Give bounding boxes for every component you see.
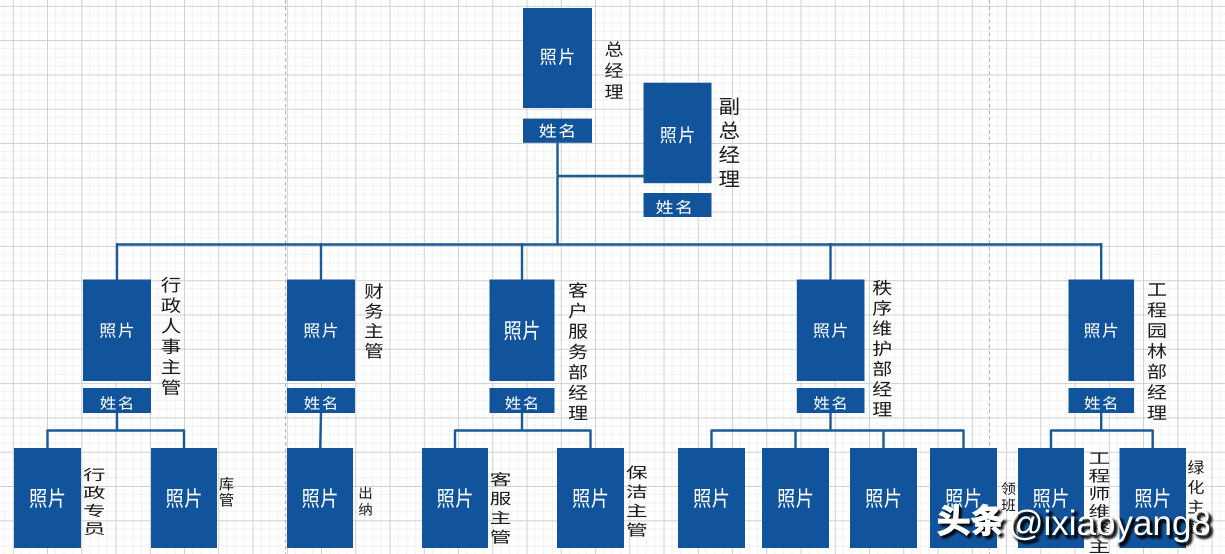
svg-text:@ixiaoyang8: @ixiaoyang8 [1008,504,1211,543]
